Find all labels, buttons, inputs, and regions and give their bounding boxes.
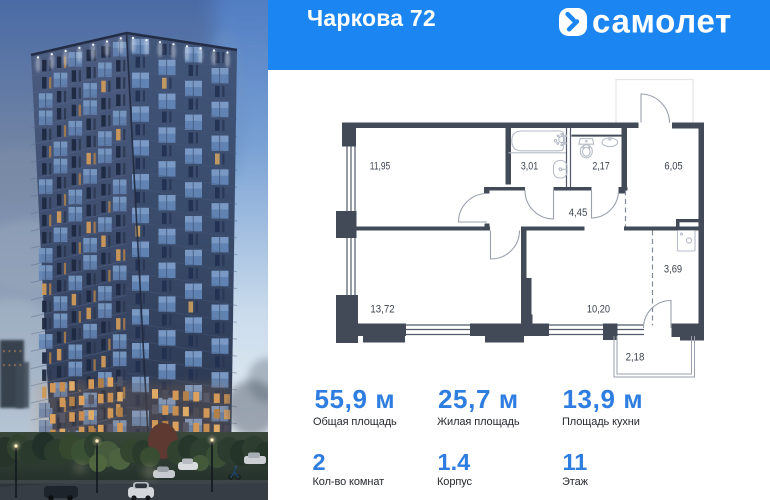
svg-text:2,17: 2,17 xyxy=(592,161,609,173)
svg-text:11,95: 11,95 xyxy=(370,161,391,173)
svg-text:13,72: 13,72 xyxy=(370,304,394,316)
svg-text:6,05: 6,05 xyxy=(664,161,682,173)
svg-text:3,01: 3,01 xyxy=(521,161,538,173)
svg-text:10,20: 10,20 xyxy=(587,304,610,316)
svg-text:2,18: 2,18 xyxy=(626,352,645,364)
svg-text:4,45: 4,45 xyxy=(569,207,588,219)
svg-text:3,69: 3,69 xyxy=(664,264,682,276)
